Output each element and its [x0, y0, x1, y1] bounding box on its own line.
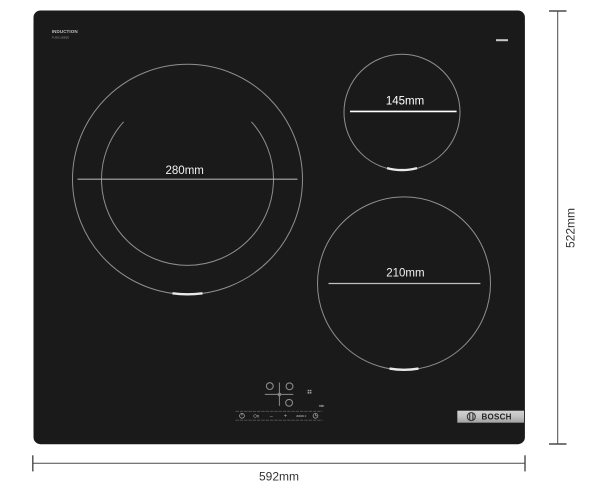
- svg-text:–: –: [270, 413, 273, 419]
- svg-text:aaaa c: aaaa c: [296, 414, 306, 418]
- svg-text:INDUCTION: INDUCTION: [52, 29, 78, 34]
- svg-text:+: +: [284, 414, 287, 420]
- svg-text:280mm: 280mm: [166, 165, 204, 177]
- svg-text:145mm: 145mm: [386, 96, 424, 108]
- svg-text:210mm: 210mm: [386, 268, 424, 280]
- svg-text:PUE611BB5E: PUE611BB5E: [52, 36, 69, 40]
- svg-text:On: On: [253, 414, 260, 419]
- svg-text:592mm: 592mm: [259, 470, 299, 484]
- svg-text:min: min: [319, 404, 325, 408]
- svg-text:BOSCH: BOSCH: [482, 413, 512, 422]
- svg-text:522mm: 522mm: [564, 208, 578, 248]
